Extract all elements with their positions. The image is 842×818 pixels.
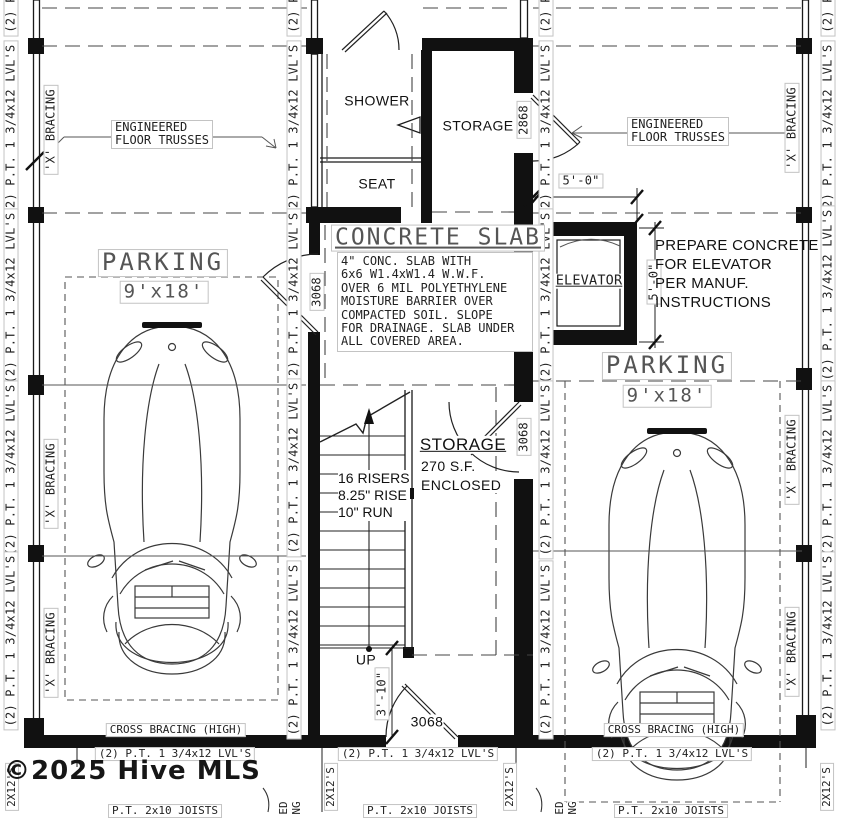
pt-joists-label: P.T. 2x10 JOISTS	[363, 804, 477, 818]
prep-line: PREPARE CONCRETE	[655, 236, 819, 255]
lvl-label: (2) P.T. 1 3/4x12 LVL'S	[287, 561, 302, 740]
x-bracing-label: 'X' BRACING	[44, 608, 59, 698]
concrete-slab-note: 4" CONC. SLAB WITH 6x6 W1.4xW1.4 W.W.F. …	[337, 252, 533, 352]
storage-area: 270 S.F.	[421, 458, 476, 474]
lvl-label: (2) P.T. 1 3/4x12 LVL'S	[4, 552, 19, 731]
room-storage-top: STORAGE	[442, 118, 513, 133]
cut-label: NG	[291, 801, 303, 814]
slab-note-line: ALL COVERED AREA.	[341, 335, 529, 348]
floor-plan: (2) P (2) P.T. 1 3/4x12 LVL'S (2) P.T. 1…	[0, 0, 842, 814]
prep-line: PER MANUF.	[655, 274, 819, 293]
slab-note-line: OVER 6 MIL POLYETHYLENE	[341, 282, 529, 295]
stair-note: 16 RISERS 8.25" RISE 10" RUN	[338, 470, 410, 521]
stair-rise: 8.25" RISE	[338, 487, 410, 504]
prep-line: FOR ELEVATOR	[655, 255, 819, 274]
pt-joists-label: P.T. 2x10 JOISTS	[108, 804, 222, 818]
slab-note-line: FOR DRAINAGE. SLAB UNDER	[341, 322, 529, 335]
lvl-label: (2) P.T. 1 3/4x12 LVL'S	[539, 561, 554, 740]
cut-label: ED	[554, 801, 566, 814]
pt-joists-label: P.T. 2x10 JOISTS	[614, 804, 728, 818]
deck-joist-label: 2X12'S	[324, 763, 338, 811]
door-3068-label: 3068	[517, 418, 532, 456]
stair-run: 10" RUN	[338, 504, 410, 521]
elevator-width-dim: 5'-0"	[558, 174, 603, 189]
lvl-label-cut: (2) P	[287, 0, 302, 37]
lvl-label: (2) P.T. 1 3/4x12 LVL'S	[821, 206, 836, 385]
trusses-line2: FLOOR TRUSSES	[631, 131, 725, 144]
lvl-label: (2) P.T. 1 3/4x12 LVL'S	[539, 381, 554, 560]
prep-line: INSTRUCTIONS	[655, 293, 819, 312]
lvl-label: (2) P.T. 1 3/4x12 LVL'S	[4, 41, 19, 220]
x-bracing-label: 'X' BRACING	[44, 85, 59, 175]
concrete-slab-title: CONCRETE SLAB	[335, 225, 541, 251]
room-seat: SEAT	[358, 176, 395, 191]
deck-joist-label: 2X12'S	[503, 763, 517, 811]
lvl-label: (2) P.T. 1 3/4x12 LVL'S	[287, 379, 302, 558]
lvl-label: (2) P.T. 1 3/4x12 LVL'S	[821, 41, 836, 220]
lvl-label-cut: (2) P	[821, 0, 836, 37]
deck-joist-label: 2X12'S	[820, 763, 834, 811]
slab-note-line: 6x6 W1.4xW1.4 W.W.F.	[341, 268, 529, 281]
room-elevator: ELEVATOR	[556, 274, 623, 289]
cut-label: NG	[567, 801, 579, 814]
engineered-trusses-note: ENGINEERED FLOOR TRUSSES	[627, 117, 729, 146]
parking-size: 9'x18'	[120, 281, 209, 304]
trusses-line2: FLOOR TRUSSES	[115, 134, 209, 147]
cross-bracing-label: CROSS BRACING (HIGH)	[106, 723, 246, 737]
door-3068-label: 3068	[310, 273, 325, 311]
trusses-line1: ENGINEERED	[115, 121, 209, 134]
lvl-label: (2) P.T. 1 3/4x12 LVL'S	[4, 381, 19, 560]
stair-up-label: UP	[356, 652, 376, 667]
room-shower: SHOWER	[344, 93, 409, 108]
elevator-prep-note: PREPARE CONCRETE FOR ELEVATOR PER MANUF.…	[655, 236, 819, 312]
room-storage-main: STORAGE	[420, 436, 506, 454]
lvl-label-cut: (2) P	[539, 0, 554, 37]
slab-note-line: 4" CONC. SLAB WITH	[341, 255, 529, 268]
parking-size: 9'x18'	[623, 385, 712, 408]
lvl-label: (2) P.T. 1 3/4x12 LVL'S	[287, 41, 302, 220]
lvl-label-bottom: (2) P.T. 1 3/4x12 LVL'S	[592, 747, 752, 761]
stair-risers: 16 RISERS	[338, 470, 410, 487]
stair-landing-dim: 3'-10"	[375, 668, 390, 721]
x-bracing-label: 'X' BRACING	[785, 607, 800, 697]
parking-title: PARKING	[98, 249, 228, 277]
watermark: ©2025 Hive MLS	[4, 756, 261, 786]
lvl-label-bottom: (2) P.T. 1 3/4x12 LVL'S	[338, 747, 498, 761]
lvl-label-cut: (2) P	[4, 0, 19, 37]
slab-note-line: MOISTURE BARRIER OVER	[341, 295, 529, 308]
lvl-label: (2) P.T. 1 3/4x12 LVL'S	[287, 209, 302, 388]
storage-enclosed: ENCLOSED	[421, 477, 501, 493]
trusses-line1: ENGINEERED	[631, 118, 725, 131]
slab-note-line: COMPACTED SOIL. SLOPE	[341, 309, 529, 322]
x-bracing-label: 'X' BRACING	[785, 83, 800, 173]
lvl-label: (2) P.T. 1 3/4x12 LVL'S	[821, 381, 836, 560]
engineered-trusses-note: ENGINEERED FLOOR TRUSSES	[111, 120, 213, 149]
door-2868-label: 2868	[517, 101, 532, 139]
cross-bracing-label: CROSS BRACING (HIGH)	[604, 723, 744, 737]
door-3068-bottom-label: 3068	[411, 714, 444, 729]
x-bracing-label: 'X' BRACING	[785, 415, 800, 505]
cut-label: ED	[278, 801, 290, 814]
x-bracing-label: 'X' BRACING	[44, 439, 59, 529]
lvl-label: (2) P.T. 1 3/4x12 LVL'S	[4, 209, 19, 388]
lvl-label: (2) P.T. 1 3/4x12 LVL'S	[539, 41, 554, 220]
parking-title: PARKING	[602, 352, 732, 380]
lvl-label: (2) P.T. 1 3/4x12 LVL'S	[821, 552, 836, 731]
